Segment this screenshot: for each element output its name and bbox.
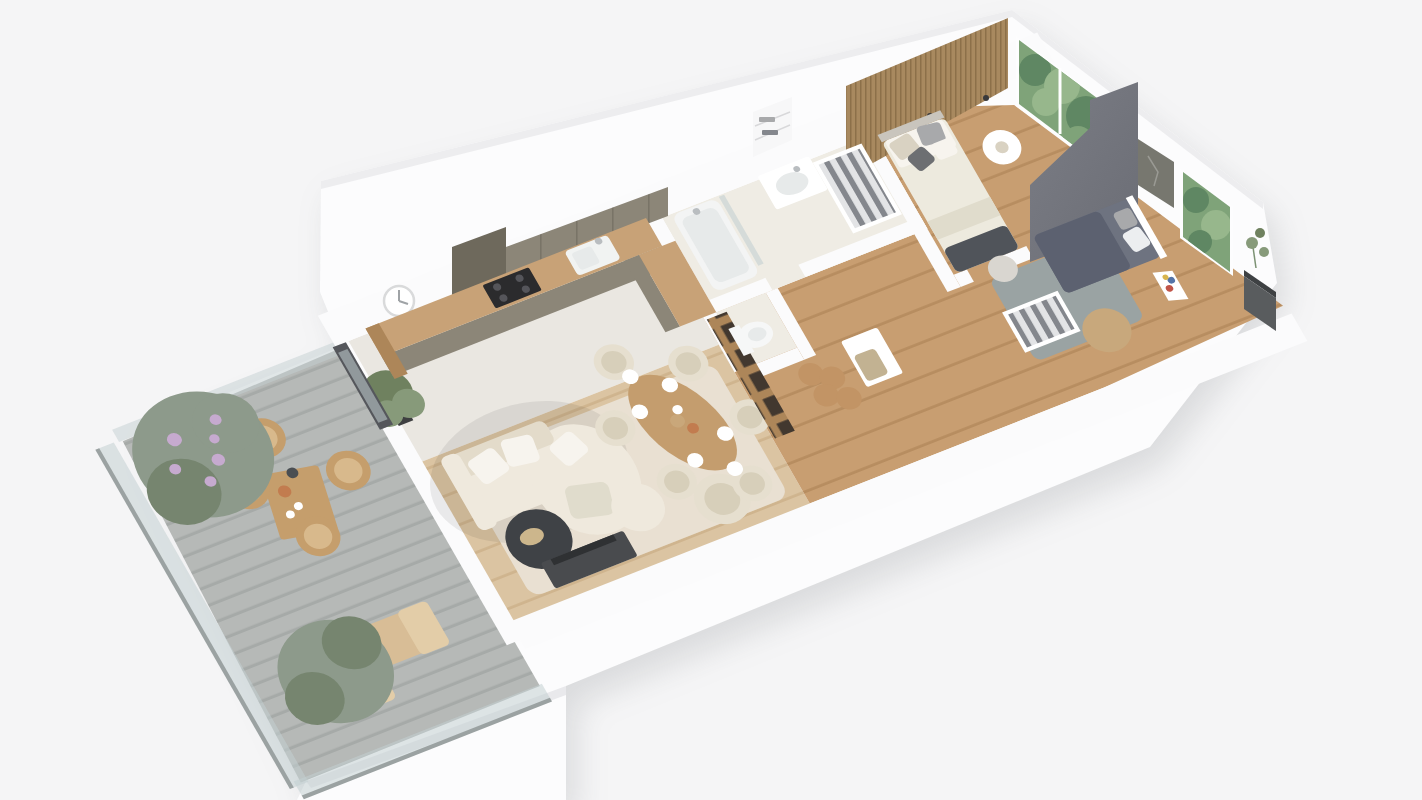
planter-foliage: [1246, 237, 1258, 249]
folded-linen: [759, 117, 775, 122]
sofa-throw: [564, 481, 616, 519]
planter-foliage: [1259, 247, 1269, 257]
apartment-3d-floorplan: [0, 0, 1422, 800]
wall-sconce: [983, 95, 989, 101]
folded-linen: [762, 130, 778, 135]
planter-foliage: [1255, 228, 1265, 238]
floorplan-render: [0, 0, 1422, 800]
